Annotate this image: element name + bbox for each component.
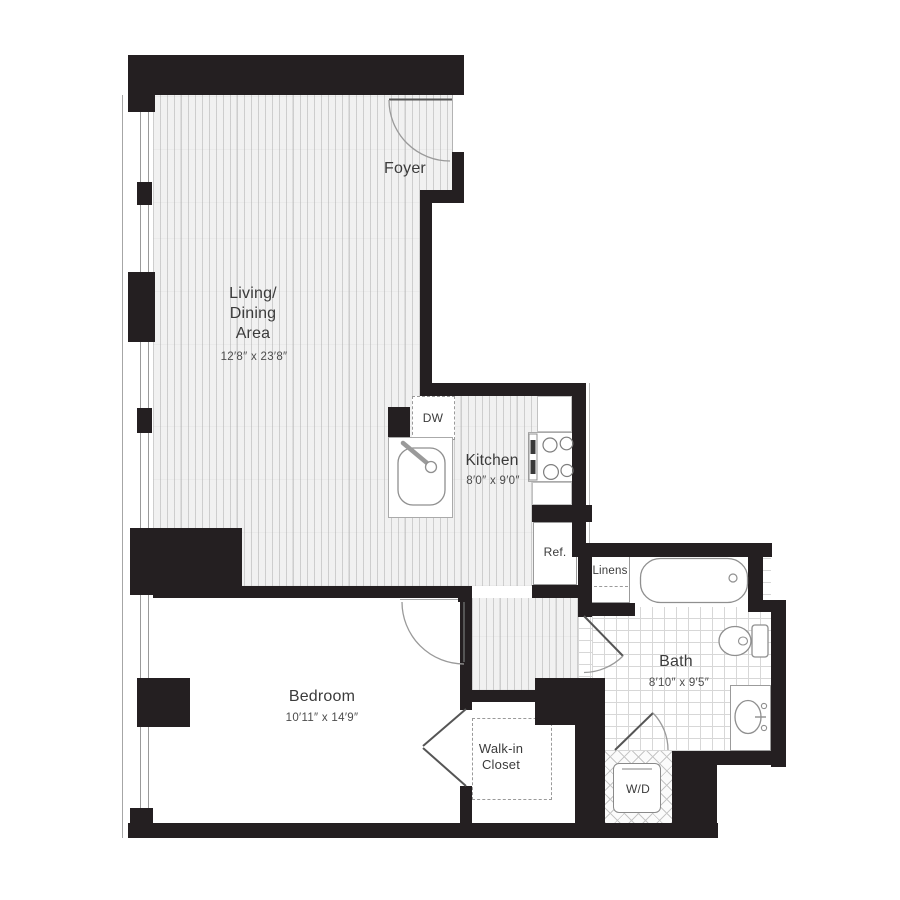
wd-door-arc [653, 713, 668, 750]
label-washer-dryer: W/D [626, 782, 650, 796]
label-linens: Linens [592, 565, 627, 577]
bath-door-leaf [584, 616, 623, 656]
kitchen-faucet-base [426, 462, 437, 473]
stove-handle-top [531, 440, 536, 454]
label-bedroom: Bedroom [289, 687, 355, 707]
dims-kitchen: 8′0″ x 9′0″ [466, 475, 519, 487]
bedroom-door-arc [402, 602, 464, 664]
closet-door-leaf-upper [423, 709, 466, 746]
label-walkin-closet: Walk-in Closet [479, 741, 523, 773]
vanity-handle-bottom [761, 725, 766, 730]
label-kitchen: Kitchen [465, 451, 518, 471]
wd-door-leaf [615, 713, 653, 750]
dims-bath: 8′10″ x 9′5″ [649, 677, 709, 689]
burner-top-left [543, 438, 557, 452]
floor-plan: Foyer Living/ Dining Area 12′8″ x 23′8″ … [0, 0, 900, 900]
label-foyer: Foyer [384, 159, 426, 179]
bath-door-arc [584, 656, 623, 673]
burner-bottom-left [544, 465, 559, 480]
entry-door-arc [389, 100, 450, 161]
label-refrigerator: Ref. [544, 545, 567, 559]
bathtub [641, 559, 748, 603]
burner-top-right [560, 437, 573, 450]
dims-living: 12′8″ x 23′8″ [221, 351, 288, 363]
dims-bedroom: 10′11″ x 14′9″ [286, 712, 359, 724]
label-dishwasher: DW [423, 411, 443, 425]
label-bath: Bath [659, 652, 693, 672]
toilet-tank [752, 625, 768, 657]
label-living: Living/ Dining Area [229, 284, 277, 344]
closet-door-leaf-lower [423, 748, 466, 786]
stove-handle-bottom [531, 460, 536, 474]
fixtures-layer [0, 0, 900, 900]
burner-bottom-right [561, 465, 573, 477]
vanity-handle-top [761, 703, 766, 708]
toilet-bowl [719, 627, 751, 656]
